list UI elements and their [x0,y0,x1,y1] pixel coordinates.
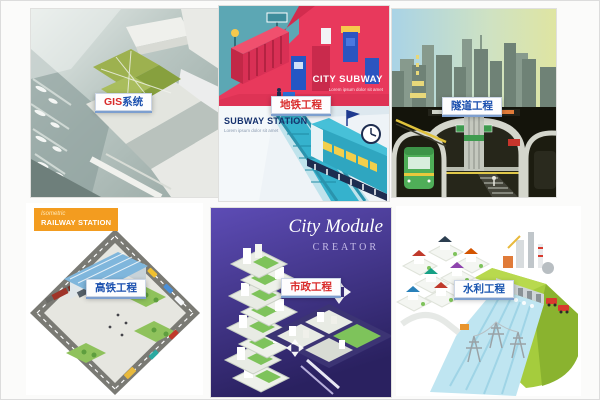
thumbnail-grid: GIS系统 [0,0,600,400]
railway-tag: 高铁工程 [86,279,146,297]
subway-station-subtitle: Lorem ipsum dolor sit amet [224,128,307,133]
city-subway-subtitle: Lorem ipsum dolor sit amet [313,87,383,92]
municipal-tag: 市政工程 [281,278,341,296]
gis-tag-suffix: 系统 [122,96,143,108]
tunnel-tag-label: 隧道工程 [451,100,493,112]
dam-illustration [396,206,581,396]
city-module-subtitle: CREATOR [313,242,379,253]
municipal-tag-label: 市政工程 [290,281,332,293]
water-tag: 水利工程 [454,280,514,298]
city-subway-banner: CITY SUBWAY Lorem ipsum dolor sit amet [313,74,383,92]
subway-tag: 地铁工程 [271,96,331,114]
subway-station-text: SUBWAY STATION Lorem ipsum dolor sit ame… [224,116,307,133]
railway-badge: Isometric RAILWAY STATION [34,208,118,231]
gis-tag: GIS系统 [95,93,152,111]
subway-station-title: SUBWAY STATION [224,116,307,126]
water-tag-label: 水利工程 [463,283,505,295]
tunnel-tag: 隧道工程 [442,97,502,115]
tile-water-conservancy[interactable]: 水利工程 [396,206,581,396]
railway-tag-label: 高铁工程 [95,282,137,294]
tile-municipal-engineering[interactable]: City Module CREATOR 市政工程 [211,208,391,397]
city-module-title: City Module [289,216,383,238]
railway-station-illustration [26,203,203,395]
tile-high-speed-rail[interactable]: Isometric RAILWAY STATION 高铁工程 [26,203,203,395]
tile-gis-system[interactable]: GIS系统 [31,9,219,197]
tile-tunnel-engineering[interactable]: 隧道工程 [392,9,556,197]
subway-tag-label: 地铁工程 [280,99,322,111]
city-subway-title: CITY SUBWAY [313,74,383,85]
tile-subway-engineering[interactable]: CITY SUBWAY Lorem ipsum dolor sit amet S… [219,6,389,201]
gis-tag-prefix: GIS [104,96,122,108]
railway-badge-line1: Isometric [41,211,111,217]
railway-badge-line2: RAILWAY STATION [41,218,111,227]
